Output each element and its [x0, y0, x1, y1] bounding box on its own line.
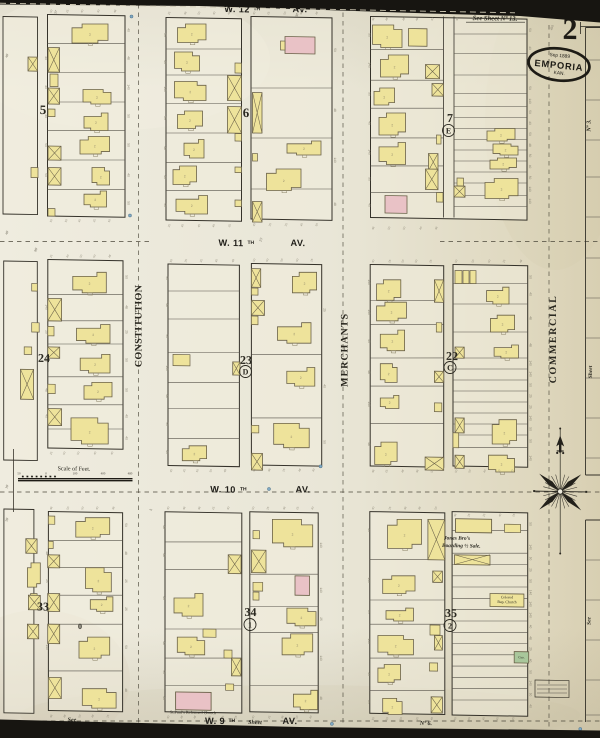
svg-text:2: 2: [96, 96, 98, 100]
svg-text:40: 40: [163, 60, 167, 64]
svg-text:See Sheet Nº 13.: See Sheet Nº 13.: [473, 15, 518, 23]
svg-text:2: 2: [501, 463, 503, 467]
svg-text:See: See: [587, 616, 593, 625]
svg-text:25: 25: [124, 607, 128, 611]
svg-text:50: 50: [528, 176, 532, 180]
svg-text:48: 48: [124, 688, 128, 692]
svg-text:Bap. Church: Bap. Church: [497, 600, 516, 604]
svg-text:40: 40: [529, 292, 533, 296]
svg-text:2: 2: [300, 376, 302, 380]
svg-text:2: 2: [399, 613, 401, 617]
svg-text:2: 2: [383, 96, 385, 100]
svg-text:2: 2: [92, 333, 94, 337]
svg-text:2: 2: [94, 144, 96, 148]
svg-text:40: 40: [528, 46, 532, 50]
svg-text:Jones Bro’s: Jones Bro’s: [443, 535, 470, 541]
svg-text:22: 22: [446, 349, 458, 363]
svg-text:2: 2: [95, 121, 97, 125]
svg-text:W. 9: W. 9: [205, 716, 225, 726]
svg-text:50: 50: [529, 670, 533, 674]
svg-text:140: 140: [529, 601, 533, 607]
svg-text:140: 140: [45, 644, 49, 650]
svg-text:140: 140: [529, 371, 533, 377]
svg-text:48: 48: [162, 553, 166, 557]
svg-text:40: 40: [529, 704, 533, 708]
svg-text:2: 2: [98, 698, 100, 702]
svg-text:2: 2: [100, 175, 102, 179]
svg-text:25: 25: [163, 33, 167, 37]
svg-text:50: 50: [163, 203, 167, 207]
svg-text:50: 50: [528, 154, 532, 158]
svg-text:TH: TH: [248, 240, 255, 246]
svg-text:2: 2: [184, 174, 186, 178]
svg-text:48: 48: [162, 525, 166, 529]
svg-text:2: 2: [394, 65, 396, 69]
svg-text:50: 50: [125, 358, 129, 362]
svg-text:48: 48: [319, 696, 323, 700]
svg-text:140: 140: [367, 309, 371, 315]
svg-text:50: 50: [124, 645, 128, 649]
svg-text:50: 50: [125, 388, 129, 392]
svg-text:34: 34: [245, 605, 257, 619]
svg-text:St.Paul’s Reformed Church: St.Paul’s Reformed Church: [170, 709, 217, 715]
svg-text:50: 50: [529, 275, 533, 279]
svg-text:25: 25: [529, 405, 533, 409]
svg-text:2: 2: [386, 36, 388, 40]
svg-text:2: 2: [191, 32, 193, 36]
svg-text:2: 2: [503, 431, 505, 435]
svg-text:2: 2: [188, 604, 190, 608]
svg-text:25: 25: [125, 330, 129, 334]
svg-text:2: 2: [502, 323, 504, 327]
svg-text:50: 50: [127, 201, 131, 205]
svg-text:2: 2: [497, 295, 499, 299]
svg-text:50: 50: [368, 33, 372, 37]
svg-text:2: 2: [389, 401, 391, 405]
svg-text:2: 2: [404, 534, 406, 538]
svg-text:140: 140: [529, 415, 533, 421]
svg-text:50: 50: [127, 114, 131, 118]
svg-text:D: D: [243, 367, 249, 376]
svg-text:2: 2: [505, 350, 507, 354]
svg-text:2: 2: [500, 134, 502, 138]
svg-text:140: 140: [165, 365, 169, 371]
svg-text:40: 40: [127, 28, 131, 32]
svg-text:50: 50: [165, 334, 169, 338]
svg-text:140: 140: [528, 98, 532, 104]
svg-text:140: 140: [127, 84, 131, 90]
svg-text:48: 48: [529, 636, 533, 640]
svg-text:40: 40: [127, 173, 131, 177]
svg-text:2: 2: [391, 311, 393, 315]
svg-text:140: 140: [319, 542, 323, 548]
svg-text:2: 2: [94, 363, 96, 367]
svg-text:Nº 3.: Nº 3.: [587, 119, 593, 133]
svg-text:0: 0: [78, 622, 82, 631]
svg-text:48: 48: [333, 108, 337, 112]
svg-text:AV.: AV.: [296, 484, 311, 494]
svg-text:2: 2: [190, 645, 192, 649]
svg-text:140: 140: [319, 587, 323, 593]
svg-text:140: 140: [367, 279, 371, 285]
svg-text:2: 2: [391, 123, 393, 127]
svg-text:50: 50: [528, 110, 532, 114]
svg-text:140: 140: [528, 186, 532, 192]
svg-text:40: 40: [44, 85, 48, 89]
svg-text:2: 2: [501, 188, 503, 192]
svg-text:2: 2: [186, 61, 188, 65]
svg-text:48: 48: [125, 305, 129, 309]
svg-text:48: 48: [165, 394, 169, 398]
svg-text:50: 50: [529, 439, 533, 443]
svg-text:140: 140: [529, 680, 533, 686]
svg-text:50: 50: [333, 48, 337, 52]
svg-text:COMMERCIAL: COMMERCIAL: [548, 294, 559, 383]
svg-text:48: 48: [528, 143, 532, 147]
svg-text:2: 2: [283, 179, 285, 183]
svg-text:40: 40: [125, 414, 129, 418]
svg-text:140: 140: [163, 86, 167, 92]
svg-text:MERCHANTS: MERCHANTS: [340, 313, 351, 387]
svg-text:50: 50: [529, 522, 533, 526]
svg-text:2: 2: [304, 282, 306, 286]
svg-text:25: 25: [529, 394, 533, 398]
svg-text:25: 25: [367, 700, 371, 704]
svg-text:Sheet: Sheet: [248, 720, 262, 726]
svg-text:25: 25: [319, 617, 323, 621]
svg-text:2: 2: [505, 148, 507, 152]
svg-text:TH: TH: [240, 486, 247, 492]
svg-text:2: 2: [98, 579, 100, 583]
svg-text:35: 35: [445, 606, 457, 620]
svg-text:50: 50: [44, 173, 48, 177]
svg-text:140: 140: [319, 655, 323, 661]
svg-text:2: 2: [398, 584, 400, 588]
svg-text:40: 40: [367, 672, 371, 676]
svg-text:40: 40: [367, 339, 371, 343]
svg-text:50: 50: [165, 422, 169, 426]
svg-text:1: 1: [248, 620, 252, 629]
svg-text:140: 140: [368, 62, 372, 68]
svg-text:2: 2: [97, 390, 99, 394]
svg-text:40: 40: [368, 203, 372, 207]
svg-text:KAN.: KAN.: [553, 70, 565, 77]
svg-text:140: 140: [529, 455, 533, 461]
svg-text:48: 48: [529, 316, 533, 320]
svg-text:C: C: [447, 363, 453, 372]
svg-text:2: 2: [391, 153, 393, 157]
svg-text:50: 50: [528, 28, 532, 32]
svg-text:50: 50: [323, 440, 327, 444]
svg-text:2: 2: [89, 430, 91, 434]
svg-text:2: 2: [388, 672, 390, 676]
svg-text:2: 2: [297, 644, 299, 648]
svg-text:50: 50: [44, 143, 48, 147]
svg-text:2: 2: [388, 372, 390, 376]
svg-text:50: 50: [368, 177, 372, 181]
svg-text:25: 25: [163, 116, 167, 120]
svg-text:2: 2: [392, 340, 394, 344]
svg-text:23: 23: [240, 353, 252, 367]
svg-text:2: 2: [89, 282, 91, 286]
svg-text:50: 50: [125, 275, 129, 279]
svg-text:40: 40: [162, 696, 166, 700]
svg-text:6: 6: [243, 105, 250, 120]
svg-text:40: 40: [125, 436, 129, 440]
svg-text:W. 10: W. 10: [210, 484, 235, 494]
svg-text:40: 40: [165, 450, 169, 454]
svg-text:40: 40: [529, 625, 533, 629]
svg-text:2: 2: [101, 603, 103, 607]
svg-text:Sheet: Sheet: [588, 365, 594, 378]
svg-text:2: 2: [392, 705, 394, 709]
svg-text:2: 2: [301, 616, 303, 620]
svg-text:50: 50: [529, 557, 533, 561]
svg-text:50: 50: [127, 143, 131, 147]
svg-text:40: 40: [163, 175, 167, 179]
svg-text:48: 48: [162, 641, 166, 645]
svg-text:TH: TH: [229, 718, 236, 724]
svg-text:2: 2: [92, 527, 94, 531]
svg-text:50: 50: [124, 523, 128, 527]
svg-text:48: 48: [529, 343, 533, 347]
svg-text:50: 50: [529, 427, 533, 431]
svg-text:2: 2: [193, 148, 195, 152]
svg-text:40: 40: [368, 121, 372, 125]
svg-text:48: 48: [124, 551, 128, 555]
svg-text:50: 50: [162, 670, 166, 674]
svg-text:140: 140: [529, 612, 533, 618]
svg-text:2: 2: [395, 644, 397, 648]
svg-text:100: 100: [73, 471, 78, 475]
svg-text:33: 33: [37, 599, 49, 613]
svg-text:2: 2: [305, 699, 307, 703]
svg-text:40: 40: [367, 528, 371, 532]
svg-text:40: 40: [528, 121, 532, 125]
svg-text:25: 25: [323, 308, 327, 312]
svg-text:140: 140: [529, 590, 533, 596]
svg-text:140: 140: [367, 401, 371, 407]
svg-text:2: 2: [502, 162, 504, 166]
svg-text:2: 2: [292, 533, 294, 537]
svg-text:140: 140: [333, 157, 337, 163]
svg-text:2: 2: [191, 204, 193, 208]
svg-text:25: 25: [529, 568, 533, 572]
svg-text:7: 7: [447, 111, 453, 125]
svg-text:Nº 6.: Nº 6.: [419, 721, 433, 727]
svg-text:AV.: AV.: [283, 716, 298, 726]
svg-text:140: 140: [368, 149, 372, 155]
svg-text:2: 2: [291, 435, 293, 439]
svg-text:48: 48: [367, 442, 371, 446]
svg-text:2: 2: [293, 332, 295, 336]
svg-text:40: 40: [162, 596, 166, 600]
svg-text:24: 24: [38, 351, 50, 365]
svg-text:140: 140: [367, 577, 371, 583]
svg-text:50: 50: [529, 383, 533, 387]
svg-text:CONSTITUTION: CONSTITUTION: [134, 284, 145, 367]
svg-text:2: 2: [385, 453, 387, 457]
svg-text:50: 50: [529, 693, 533, 697]
svg-text:25: 25: [45, 579, 49, 583]
svg-text:50: 50: [165, 276, 169, 280]
svg-text:25: 25: [367, 610, 371, 614]
svg-text:40: 40: [44, 56, 48, 60]
svg-text:2: 2: [194, 452, 196, 456]
svg-text:48: 48: [333, 202, 337, 206]
svg-text:AV.: AV.: [291, 238, 306, 248]
svg-text:40: 40: [323, 384, 327, 388]
svg-text:Gro.: Gro.: [518, 655, 524, 659]
svg-text:48: 48: [127, 56, 131, 60]
svg-text:50: 50: [17, 471, 21, 475]
svg-text:40: 40: [529, 659, 533, 663]
svg-text:50: 50: [368, 92, 372, 96]
svg-text:2: 2: [89, 33, 91, 37]
svg-text:W. 11: W. 11: [219, 238, 244, 248]
svg-text:400: 400: [101, 471, 106, 475]
svg-text:25: 25: [124, 579, 128, 583]
svg-text:2: 2: [303, 147, 305, 151]
svg-text:E: E: [446, 126, 451, 135]
svg-text:50: 50: [529, 579, 533, 583]
svg-text:2: 2: [94, 198, 96, 202]
svg-text:48: 48: [163, 146, 167, 150]
svg-text:5: 5: [40, 102, 47, 117]
svg-text:2: 2: [189, 119, 191, 123]
svg-text:48: 48: [165, 303, 169, 307]
svg-text:25: 25: [529, 647, 533, 651]
svg-text:140: 140: [529, 544, 533, 550]
svg-text:Colored: Colored: [501, 595, 513, 599]
svg-text:2: 2: [448, 621, 452, 630]
svg-text:2: 2: [388, 289, 390, 293]
svg-text:140: 140: [528, 198, 532, 204]
svg-text:40: 40: [528, 165, 532, 169]
svg-text:Boarding ½ Sale.: Boarding ½ Sale.: [441, 542, 481, 550]
svg-text:48: 48: [367, 370, 371, 374]
svg-text:2: 2: [93, 647, 95, 651]
svg-text:2: 2: [189, 90, 191, 94]
svg-text:50: 50: [528, 132, 532, 136]
svg-text:50: 50: [528, 86, 532, 90]
svg-text:140: 140: [367, 638, 371, 644]
svg-text:480: 480: [128, 471, 133, 475]
svg-text:140: 140: [529, 360, 533, 366]
